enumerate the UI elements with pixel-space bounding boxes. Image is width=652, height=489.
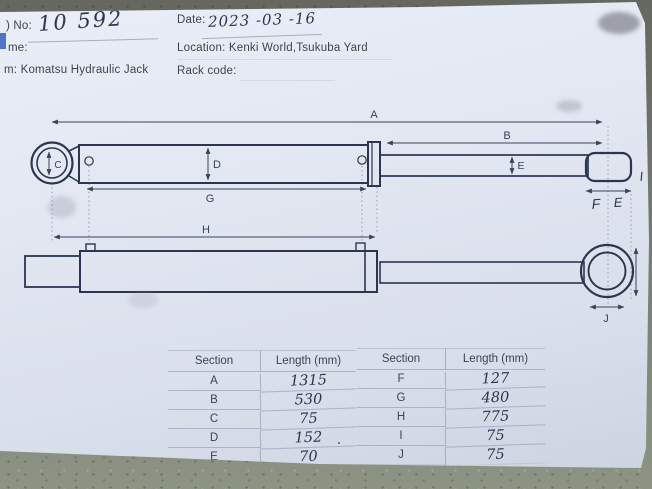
cylinder-body-side — [79, 145, 368, 183]
base-plate-top — [25, 256, 80, 287]
projection-lines — [52, 126, 631, 304]
label-D: D — [213, 159, 221, 171]
measurement-table-left: Section Length (mm) A 1315 B 530 C 75 D … — [168, 350, 356, 467]
cylinder-end-cap-side — [368, 142, 380, 186]
label-H: H — [202, 224, 210, 236]
section-cell: B — [168, 391, 260, 410]
section-cell: A — [168, 372, 260, 391]
measurement-table-right: Section Length (mm) F 127 G 480 H 775 I … — [357, 348, 545, 465]
handwritten-label-F: F — [591, 195, 602, 212]
label-J: J — [603, 313, 609, 325]
label-A: A — [370, 109, 378, 121]
section-cell: H — [357, 408, 445, 427]
piston-rod-top — [380, 262, 584, 283]
dimension-lines — [49, 122, 636, 307]
handwritten-label-I: I — [639, 169, 645, 184]
top-view-drawing — [25, 243, 633, 297]
piston-rod-side — [380, 155, 588, 176]
column-header-section: Section — [168, 350, 260, 372]
cylinder-body-top — [80, 251, 377, 292]
rod-eye-inner-side — [37, 148, 67, 178]
handwritten-labels: F E I — [591, 169, 644, 212]
port-hole-left — [85, 157, 93, 165]
paper-sheet: ) No: 10 592 Date: 2023 -03 -16 me: Loca… — [0, 0, 652, 489]
dirt-smudge — [598, 12, 640, 34]
dirt-smudge — [556, 100, 582, 112]
column-header-section: Section — [357, 348, 445, 370]
label-B: B — [503, 130, 510, 142]
section-cell: I — [357, 427, 445, 446]
label-C: C — [54, 160, 61, 171]
label-G: G — [206, 193, 215, 205]
section-cell: G — [357, 389, 445, 408]
section-cell: D — [168, 429, 260, 448]
rod-eye-inner-top — [589, 253, 626, 290]
label-E: E — [517, 160, 524, 172]
side-view-drawing — [32, 142, 632, 186]
rod-end-block-side — [586, 153, 631, 181]
port-hole-right — [358, 156, 366, 164]
blue-tape-fragment — [0, 33, 6, 49]
dirt-smudge — [128, 292, 158, 308]
section-cell: E — [168, 448, 260, 467]
section-cell: C — [168, 410, 260, 429]
length-cell: 75 — [445, 444, 546, 466]
fingerprint-smudge — [48, 196, 76, 218]
column-header-length: Length (mm) — [260, 350, 356, 372]
mount-tab-left — [86, 244, 95, 251]
pen-dot — [338, 442, 340, 444]
photo-of-inspection-sheet: ) No: 10 592 Date: 2023 -03 -16 me: Loca… — [0, 0, 652, 489]
mount-tab-right — [356, 243, 365, 251]
eye-neck — [69, 146, 79, 182]
section-cell: F — [357, 370, 445, 389]
column-header-length: Length (mm) — [445, 348, 545, 370]
length-cell: 70 — [260, 446, 357, 468]
handwritten-label-E: E — [613, 195, 623, 210]
section-cell: J — [357, 446, 445, 465]
